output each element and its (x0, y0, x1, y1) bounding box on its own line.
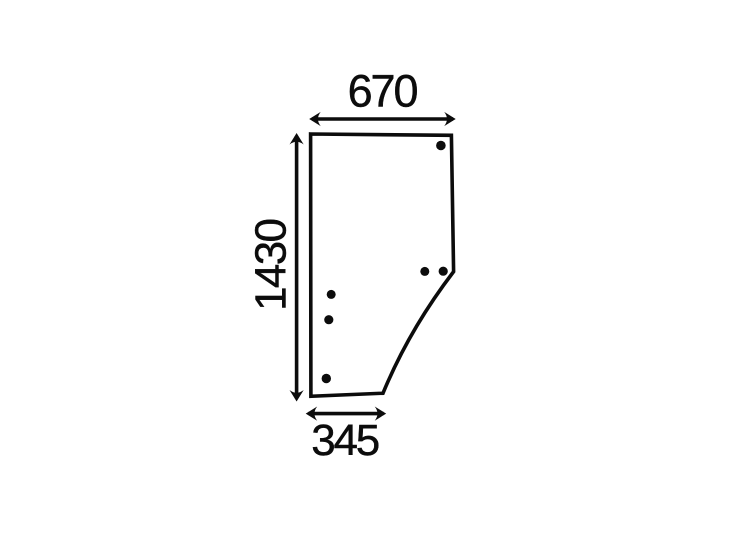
svg-text:345: 345 (311, 416, 379, 465)
svg-text:1430: 1430 (247, 220, 296, 311)
svg-text:670: 670 (348, 66, 418, 117)
